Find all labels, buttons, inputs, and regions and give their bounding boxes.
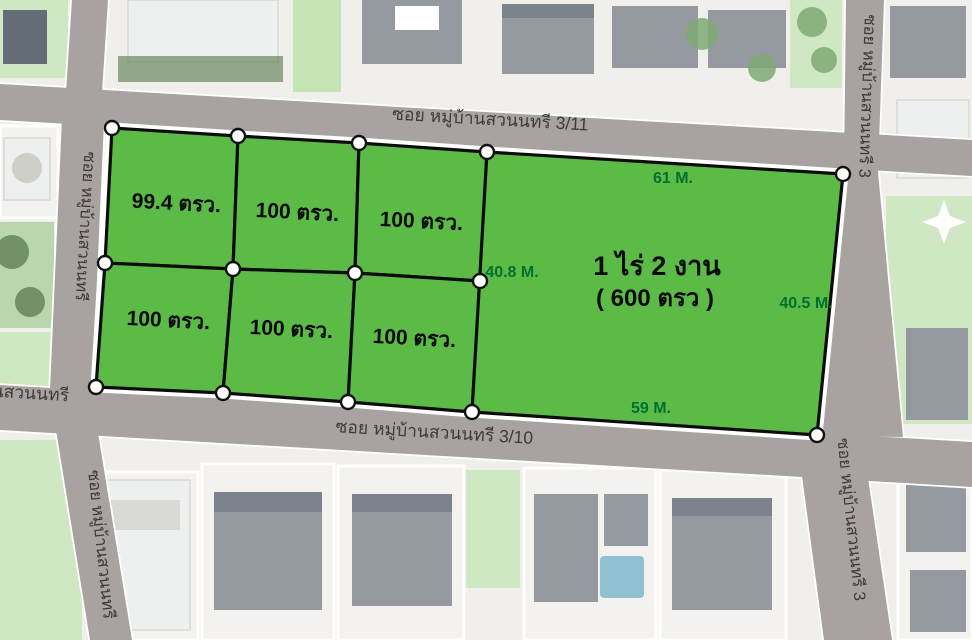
tree-block xyxy=(0,222,54,328)
measure-left: 40.8 M. xyxy=(485,264,538,281)
map-svg: ซอย หมู่บ้านสวนนทรี 3/11 ซอย หมู่บ้านสวน… xyxy=(0,0,972,640)
house-icon xyxy=(362,0,462,64)
lawn-patch xyxy=(466,470,520,588)
house-icon xyxy=(3,10,47,64)
plot-label: 100 ตรว. xyxy=(249,316,334,343)
plot-block: 99.4 ตรว. 100 ตรว. 100 ตรว. 100 ตรว. 100… xyxy=(89,121,850,442)
house-icon xyxy=(338,466,464,640)
lawn-patch xyxy=(293,0,341,92)
house-icon xyxy=(502,4,594,74)
plot-label: 99.4 ตรว. xyxy=(131,190,221,218)
tree-band xyxy=(118,56,283,82)
measure-right: 40.5 M. xyxy=(779,295,832,312)
house-icon xyxy=(660,470,786,640)
plot-label: 100 ตรว. xyxy=(255,199,340,226)
lawn-with-trees xyxy=(790,0,842,88)
house-icon xyxy=(890,6,966,78)
house-icon xyxy=(898,470,972,640)
house-icon xyxy=(202,464,334,640)
street-label-left-corner: นสวนนทรี xyxy=(0,381,70,406)
dome-building xyxy=(0,126,58,218)
house-with-pool xyxy=(524,468,656,640)
land-plot-map: ซอย หมู่บ้านสวนนทรี 3/11 ซอย หมู่บ้านสวน… xyxy=(0,0,972,640)
plot-label: 100 ตรว. xyxy=(372,325,457,352)
measure-bottom: 59 M. xyxy=(631,400,671,417)
measure-top: 61 M. xyxy=(653,170,693,187)
house-icon xyxy=(612,6,698,68)
plot-label: 100 ตรว. xyxy=(379,208,464,235)
pool-icon xyxy=(600,556,644,598)
lawn-patch xyxy=(0,332,56,386)
big-plot-label-line1: 1 ไร่ 2 งาน xyxy=(593,250,721,281)
plot-label: 100 ตรว. xyxy=(126,307,211,334)
big-plot-label-line2: ( 600 ตรว ) xyxy=(596,285,714,312)
building-icon xyxy=(128,0,278,62)
